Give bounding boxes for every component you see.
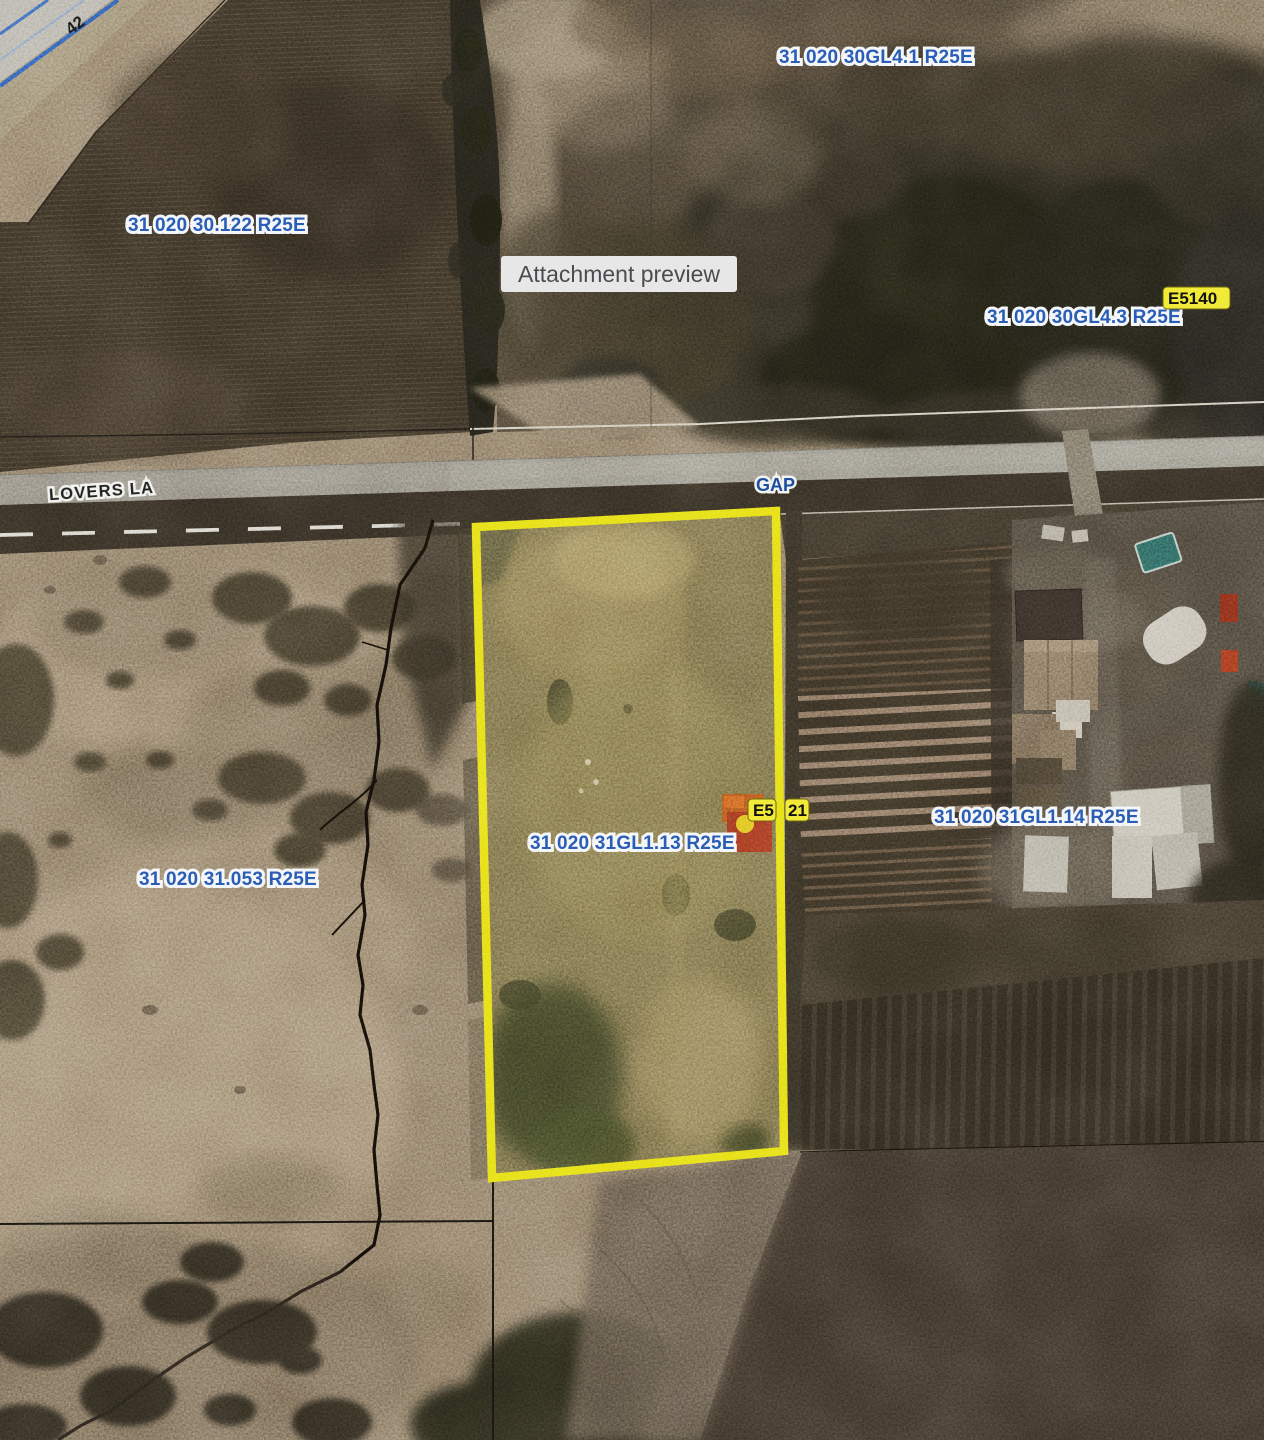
svg-text:31 020 31GL1.14 R25E: 31 020 31GL1.14 R25E: [934, 807, 1139, 828]
svg-text:31 020 30GL4.1 R25E: 31 020 30GL4.1 R25E: [779, 47, 973, 68]
svg-text:21: 21: [788, 801, 807, 820]
svg-text:E5: E5: [753, 801, 774, 820]
svg-text:31 020 30GL4.3 R25E: 31 020 30GL4.3 R25E: [987, 307, 1181, 328]
svg-text:E5140: E5140: [1168, 289, 1217, 308]
svg-text:GAP: GAP: [756, 475, 795, 495]
svg-text:31 020 31GL1.13 R25E: 31 020 31GL1.13 R25E: [530, 833, 735, 854]
svg-text:31 020 31.053 R25E: 31 020 31.053 R25E: [139, 869, 317, 890]
svg-text:31 020 30.122 R25E: 31 020 30.122 R25E: [128, 215, 306, 236]
